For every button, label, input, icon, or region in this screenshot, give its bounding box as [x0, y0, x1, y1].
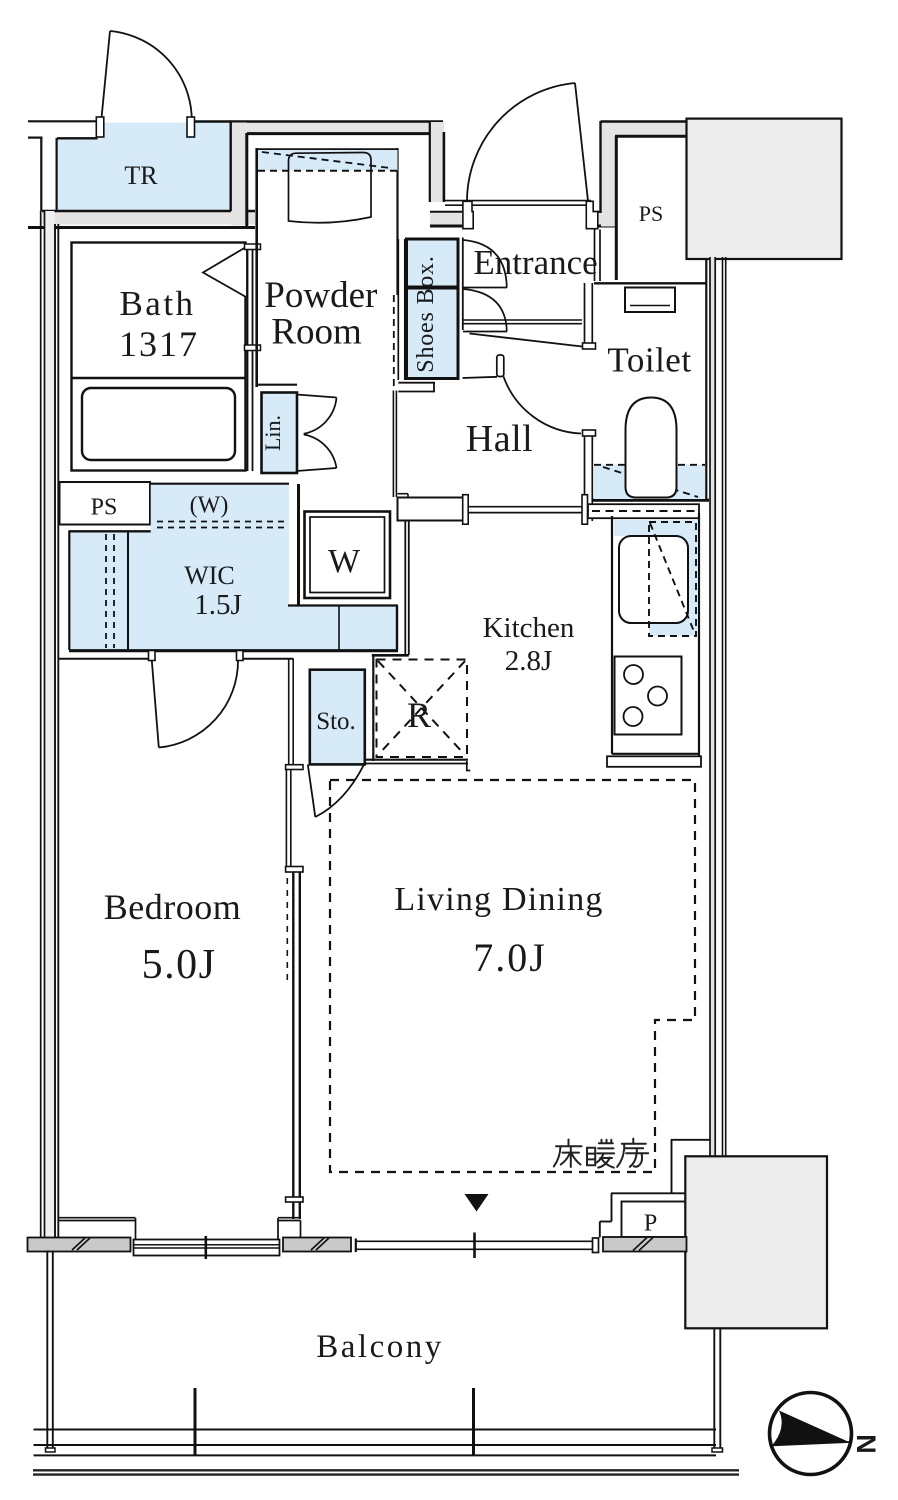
svg-text:Powder: Powder: [264, 275, 377, 316]
svg-text:Shoes Box.: Shoes Box.: [413, 255, 439, 372]
svg-text:TR: TR: [124, 161, 158, 190]
svg-text:5.0J: 5.0J: [142, 942, 217, 988]
svg-text:R: R: [407, 695, 431, 735]
svg-text:Bath: Bath: [119, 284, 195, 323]
svg-text:Kitchen: Kitchen: [483, 612, 575, 644]
svg-text:Lin.: Lin.: [260, 415, 285, 451]
svg-text:Toilet: Toilet: [607, 341, 691, 380]
svg-text:W: W: [328, 543, 361, 580]
svg-text:WIC: WIC: [184, 561, 235, 590]
svg-text:1.5J: 1.5J: [194, 589, 242, 621]
svg-text:Balcony: Balcony: [316, 1329, 443, 1365]
svg-text:7.0J: 7.0J: [473, 935, 547, 980]
svg-text:1317: 1317: [119, 324, 199, 364]
svg-text:Hall: Hall: [466, 418, 533, 460]
svg-text:Bedroom: Bedroom: [104, 887, 241, 927]
svg-text:P: P: [644, 1211, 657, 1237]
svg-text:(W): (W): [190, 493, 229, 519]
svg-text:Sto.: Sto.: [316, 708, 356, 735]
svg-text:Room: Room: [271, 312, 362, 353]
svg-text:PS: PS: [639, 201, 663, 226]
svg-text:PS: PS: [91, 495, 118, 521]
svg-text:2.8J: 2.8J: [505, 645, 553, 677]
svg-text:Entrance: Entrance: [473, 243, 597, 282]
svg-text:Living Dining: Living Dining: [394, 881, 603, 918]
svg-text:N: N: [851, 1434, 881, 1454]
